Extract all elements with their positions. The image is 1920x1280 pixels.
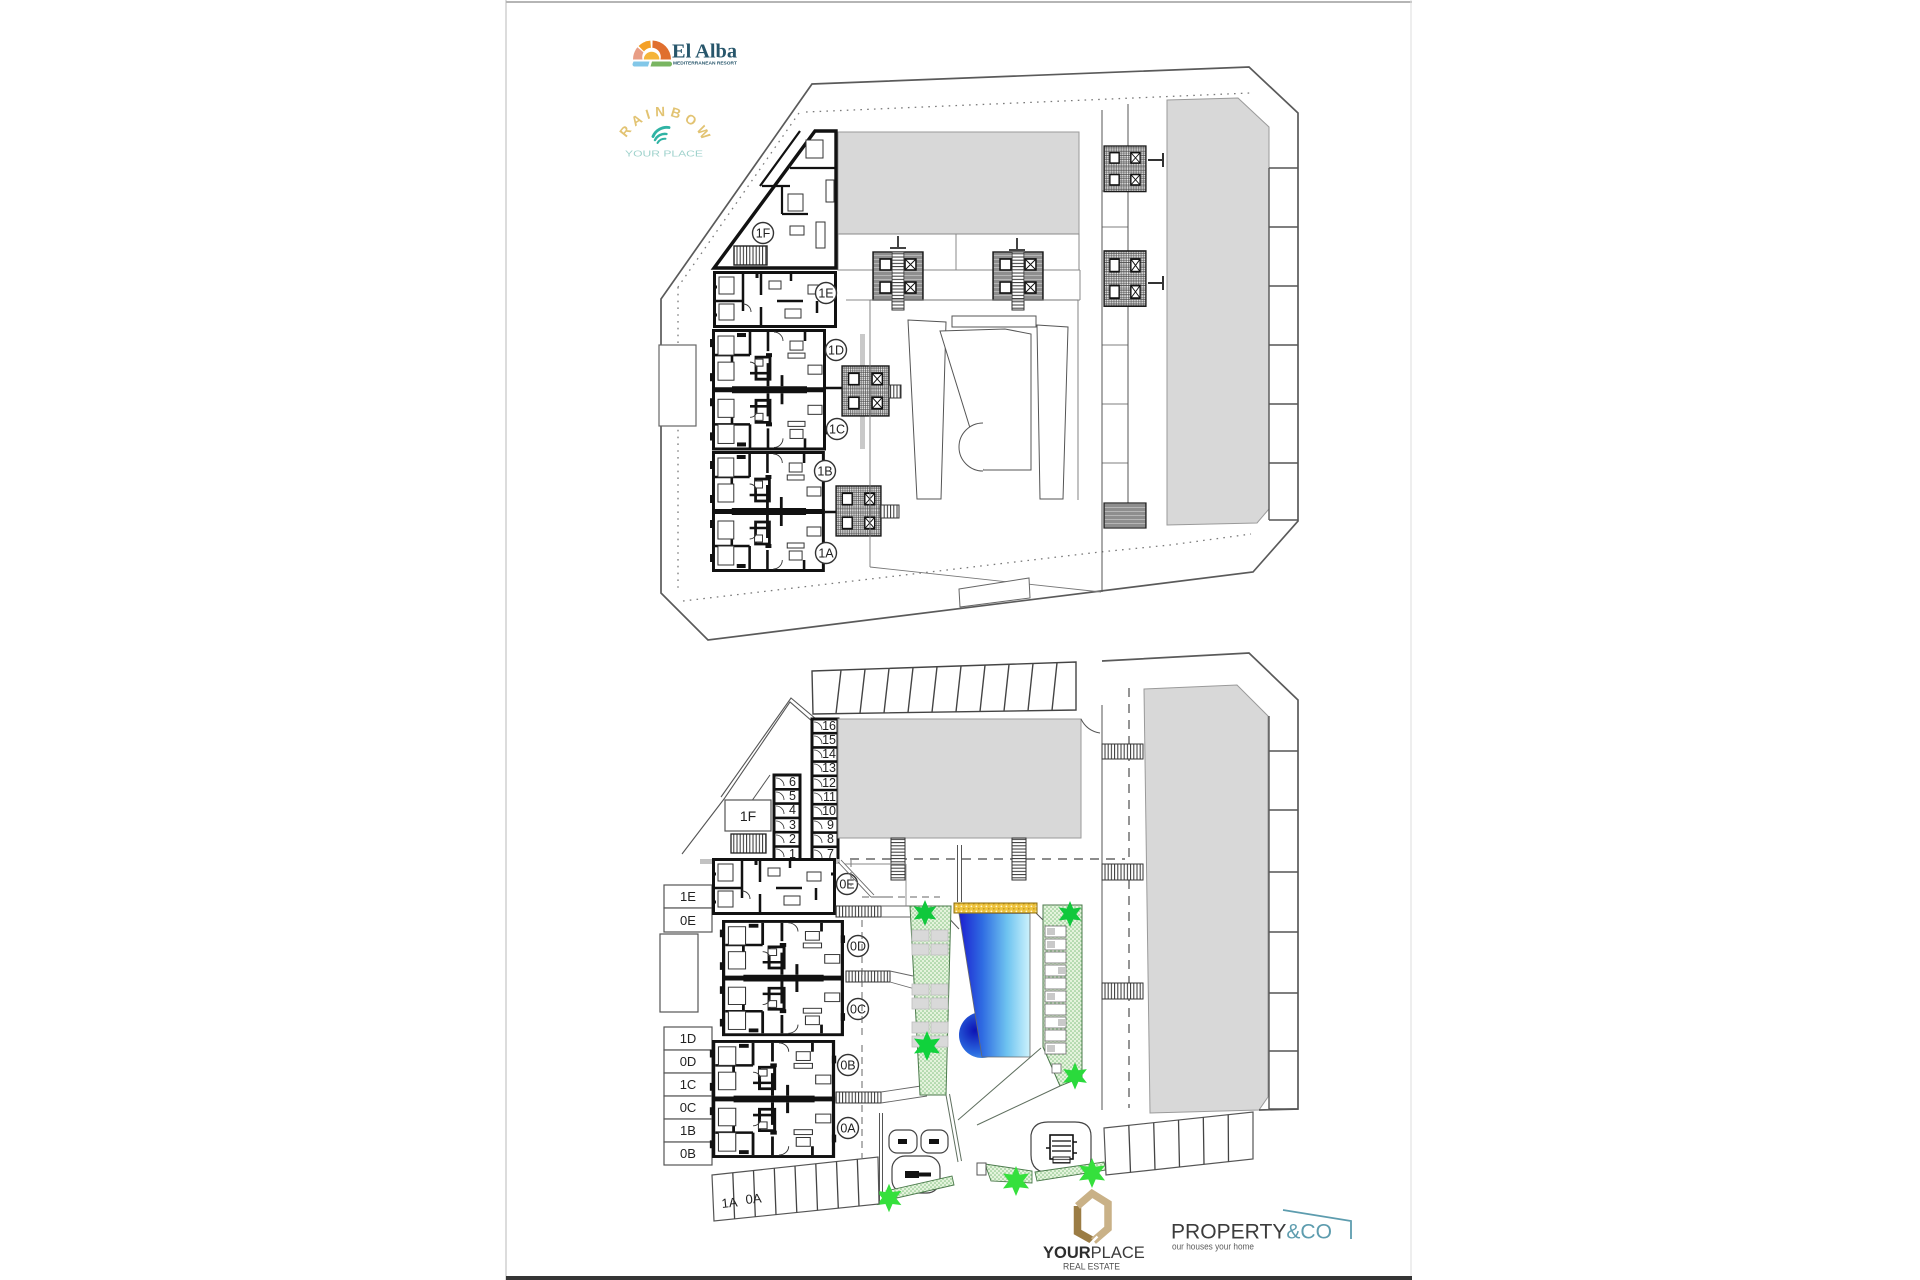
svg-text:0C: 0C [680, 1100, 697, 1115]
svg-text:1E: 1E [680, 889, 696, 904]
svg-text:15: 15 [822, 733, 836, 747]
svg-text:1E: 1E [818, 287, 833, 301]
svg-text:REAL ESTATE: REAL ESTATE [1063, 1262, 1120, 1272]
svg-text:1F: 1F [756, 227, 771, 241]
svg-text:1A: 1A [721, 1194, 739, 1211]
svg-text:1D: 1D [680, 1031, 697, 1046]
svg-text:0D: 0D [680, 1054, 697, 1069]
svg-text:0A: 0A [840, 1122, 856, 1136]
svg-text:0E: 0E [839, 878, 854, 892]
svg-text:10: 10 [822, 804, 836, 818]
svg-text:2: 2 [789, 832, 796, 846]
svg-text:1C: 1C [829, 423, 845, 437]
svg-text:6: 6 [789, 775, 796, 789]
svg-text:11: 11 [823, 790, 836, 804]
svg-text:PROPERTY&CO: PROPERTY&CO [1171, 1221, 1332, 1244]
svg-text:13: 13 [822, 761, 836, 775]
svg-text:0A: 0A [745, 1190, 763, 1207]
svg-text:1F: 1F [740, 808, 756, 824]
svg-text:MEDITERRANEAN RESORT: MEDITERRANEAN RESORT [673, 61, 737, 66]
svg-text:1A: 1A [818, 547, 834, 561]
svg-text:0B: 0B [840, 1059, 855, 1073]
svg-text:9: 9 [827, 818, 834, 832]
svg-text:YOUR PLACE: YOUR PLACE [625, 149, 703, 159]
svg-text:YOURPLACE: YOURPLACE [1043, 1244, 1145, 1262]
svg-text:5: 5 [789, 789, 796, 803]
svg-text:4: 4 [789, 803, 796, 817]
svg-text:8: 8 [827, 832, 834, 846]
svg-text:0C: 0C [850, 1003, 866, 1017]
svg-text:our houses your home: our houses your home [1172, 1242, 1254, 1252]
svg-text:El Alba: El Alba [672, 41, 737, 63]
svg-text:1C: 1C [680, 1077, 697, 1092]
svg-text:0D: 0D [850, 940, 866, 954]
svg-text:0B: 0B [680, 1146, 696, 1161]
svg-text:3: 3 [789, 818, 796, 832]
svg-text:16: 16 [822, 719, 836, 733]
svg-text:1B: 1B [817, 465, 832, 479]
svg-text:1B: 1B [680, 1123, 696, 1138]
svg-text:0E: 0E [680, 913, 696, 928]
svg-text:1D: 1D [828, 344, 844, 358]
svg-text:12: 12 [822, 776, 836, 790]
svg-text:14: 14 [822, 747, 836, 761]
